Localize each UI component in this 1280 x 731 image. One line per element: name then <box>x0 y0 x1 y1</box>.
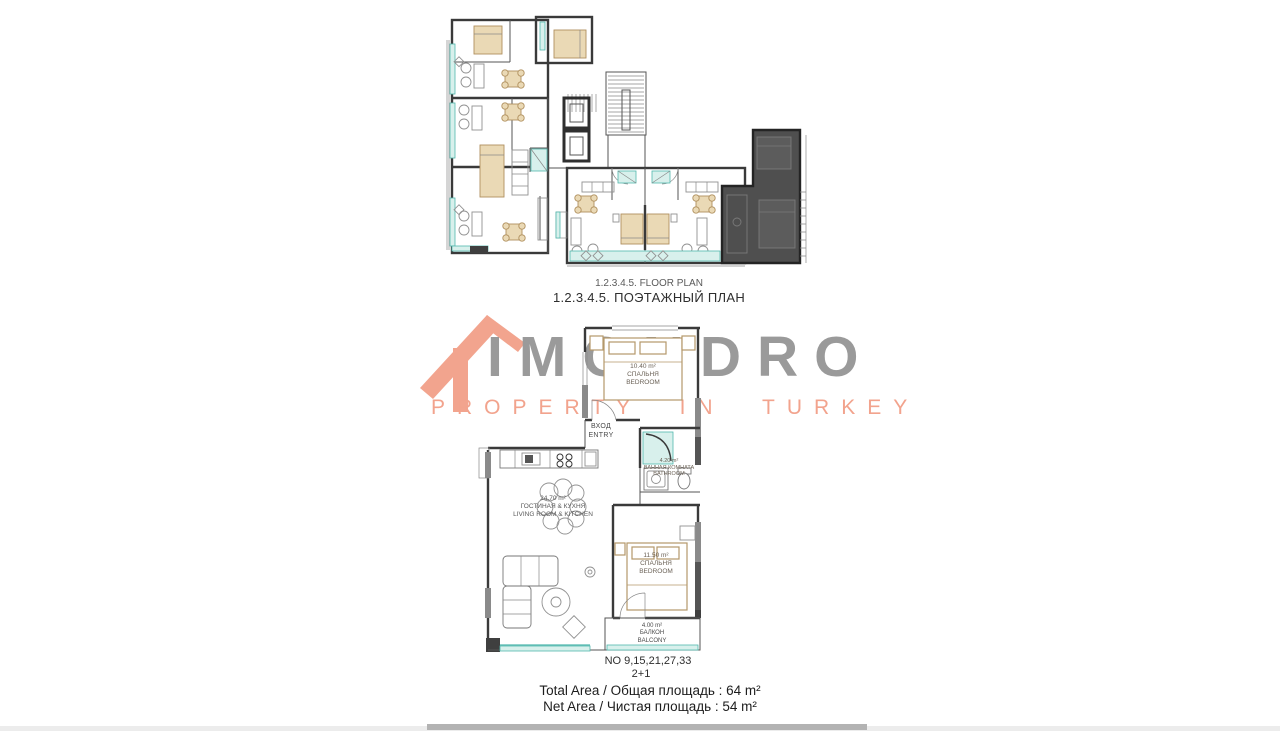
living-room-label: 24.70 m² ГОСТИНАЯ & КУХНЯ LIVING ROOM & … <box>513 495 593 519</box>
net-area: Net Area / Чистая площадь : 54 m² <box>543 699 757 714</box>
bedroom2-label: 11.50 m² СПАЛЬНЯ BEDROOM <box>639 552 673 576</box>
unit-numbers: NO 9,15,21,27,33 <box>605 655 692 667</box>
bathroom-label: 4.20 m² ВАННАЯ КОМНАТА BATHROOM <box>644 458 694 478</box>
labels-layer: 1.2.3.4.5. FLOOR PLAN 1.2.3.4.5. ПОЭТАЖН… <box>0 0 1280 731</box>
floor-plan-title-ru: 1.2.3.4.5. ПОЭТАЖНЫЙ ПЛАН <box>553 290 745 305</box>
total-area: Total Area / Общая площадь : 64 m² <box>539 683 760 698</box>
balcony-label: 4.00 m² БАЛКОН BALCONY <box>638 623 667 645</box>
unit-type: 2+1 <box>632 668 651 680</box>
bottom-divider-dark <box>427 724 867 730</box>
floor-plan-title-en: 1.2.3.4.5. FLOOR PLAN <box>595 278 703 289</box>
bedroom1-label: 10.40 m² СПАЛЬНЯ BEDROOM <box>626 363 660 387</box>
entry-label: ВХОД ENTRY <box>588 423 613 440</box>
floor-plan-page: IMONDRO PROPERTY IN TURKEY <box>0 0 1280 731</box>
